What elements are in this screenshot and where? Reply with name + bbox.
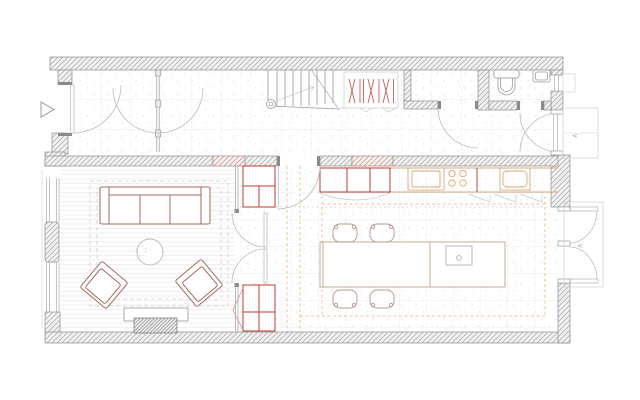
dining-chair — [370, 290, 394, 308]
wall-window-pier — [45, 222, 59, 262]
door-direction-glyph: < — [572, 132, 578, 140]
red-kitchen-unit — [320, 168, 390, 192]
french-door-swing-lower — [570, 247, 597, 279]
french-door-leaf — [570, 207, 598, 211]
wash-basin-icon — [533, 70, 550, 82]
wall-mid-new-red — [213, 156, 245, 166]
floor-plan-canvas: < < — [0, 0, 640, 400]
wall-mid-new-red-2 — [352, 156, 393, 166]
coffee-table — [137, 239, 163, 265]
right-wall-window — [555, 74, 576, 92]
door-direction-glyph: < — [577, 242, 583, 250]
living-partition — [236, 166, 239, 332]
wall-top — [50, 57, 563, 70]
wall-bottom — [45, 332, 570, 343]
island-dining-table — [320, 242, 505, 287]
entry-marker-icon — [41, 102, 54, 117]
dining-chair — [333, 290, 357, 308]
storage-floor — [411, 70, 478, 101]
sofa — [100, 187, 210, 224]
front-door-leaf — [71, 85, 75, 133]
wall-right-lower — [558, 283, 570, 343]
fireplace-firebox — [134, 318, 177, 333]
floor-plan-drawing: < < — [0, 0, 640, 400]
newel-post — [267, 100, 276, 109]
cabinet-lower — [243, 285, 275, 331]
dining-chair — [370, 224, 394, 242]
double-door-leaf — [264, 213, 267, 247]
cabinet-upper — [243, 166, 275, 207]
wall-mid — [45, 156, 213, 166]
window-sill-exterior — [563, 74, 575, 92]
dining-chair — [333, 224, 357, 242]
french-door-swing-upper — [570, 211, 597, 243]
double-door-leaf — [264, 249, 267, 283]
french-door-leaf — [570, 279, 598, 283]
coat-closet — [344, 72, 398, 108]
